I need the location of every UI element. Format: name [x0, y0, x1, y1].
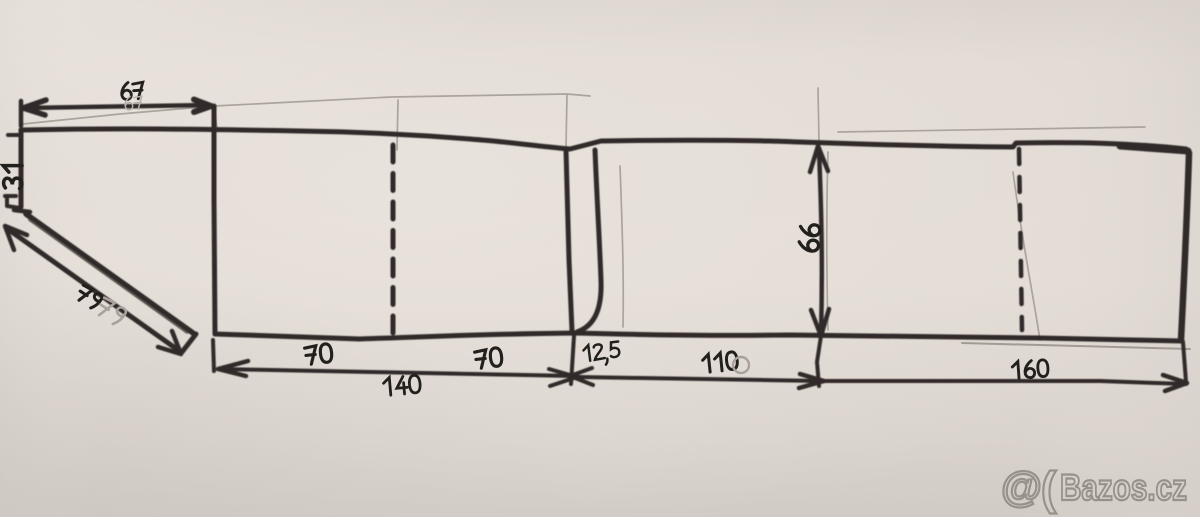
svg-text:Bazos.cz: Bazos.cz: [1060, 467, 1187, 508]
svg-text:(: (: [1041, 462, 1057, 514]
svg-text:@: @: [1001, 463, 1042, 510]
